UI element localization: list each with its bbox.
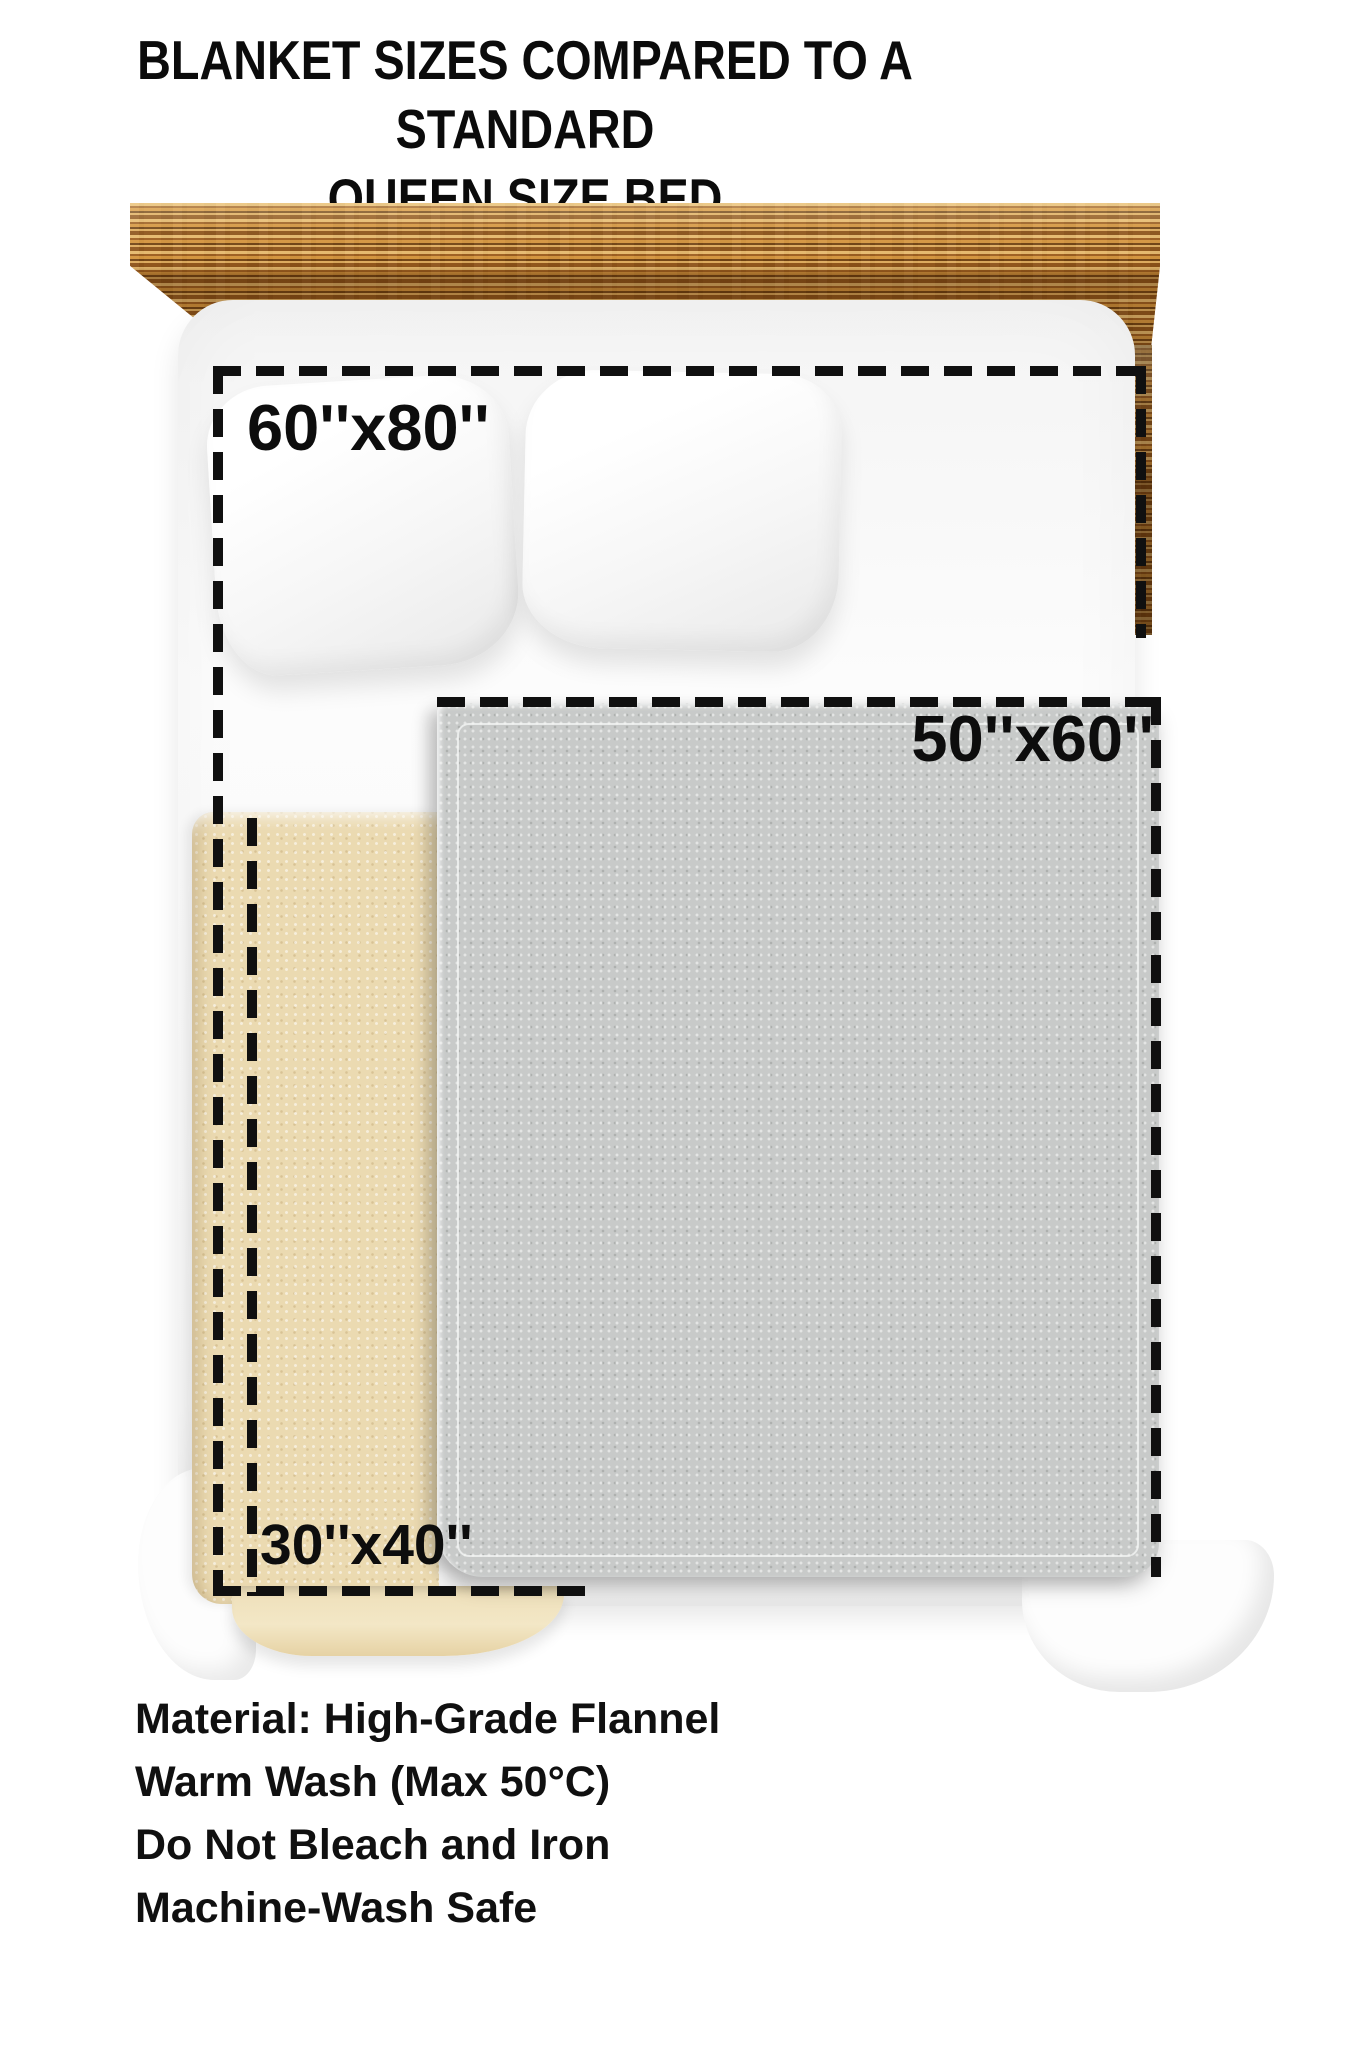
blanket-30x40-drape [232, 1586, 564, 1656]
title-line-1: BLANKET SIZES COMPARED TO A STANDARD [79, 26, 972, 164]
care-line-machine-wash: Machine-Wash Safe [135, 1877, 720, 1940]
page-title: BLANKET SIZES COMPARED TO A STANDARD QUE… [79, 26, 972, 233]
size-label-60x80: 60''x80'' [247, 390, 490, 465]
care-instructions: Material: High-Grade Flannel Warm Wash (… [135, 1688, 720, 1940]
blanket-size-infographic: BLANKET SIZES COMPARED TO A STANDARD QUE… [0, 0, 1365, 2048]
outline-60x80-right [1136, 366, 1146, 638]
pillow-right [521, 369, 843, 654]
blanket-50x60-gray [437, 703, 1159, 1577]
care-line-wash-temp: Warm Wash (Max 50°C) [135, 1751, 720, 1814]
outline-60x80-bottom [213, 1586, 585, 1596]
blanket-30x40-beige [192, 812, 439, 1604]
outline-60x80-left [213, 366, 223, 1596]
care-line-bleach-iron: Do Not Bleach and Iron [135, 1814, 720, 1877]
size-label-30x40: 30''x40'' [260, 1512, 473, 1578]
outline-50x60-right [1151, 697, 1161, 1577]
outline-60x80-top [213, 366, 1156, 376]
size-label-50x60: 50''x60'' [911, 701, 1154, 776]
outline-30x40-left [247, 818, 257, 1596]
care-line-material: Material: High-Grade Flannel [135, 1688, 720, 1751]
